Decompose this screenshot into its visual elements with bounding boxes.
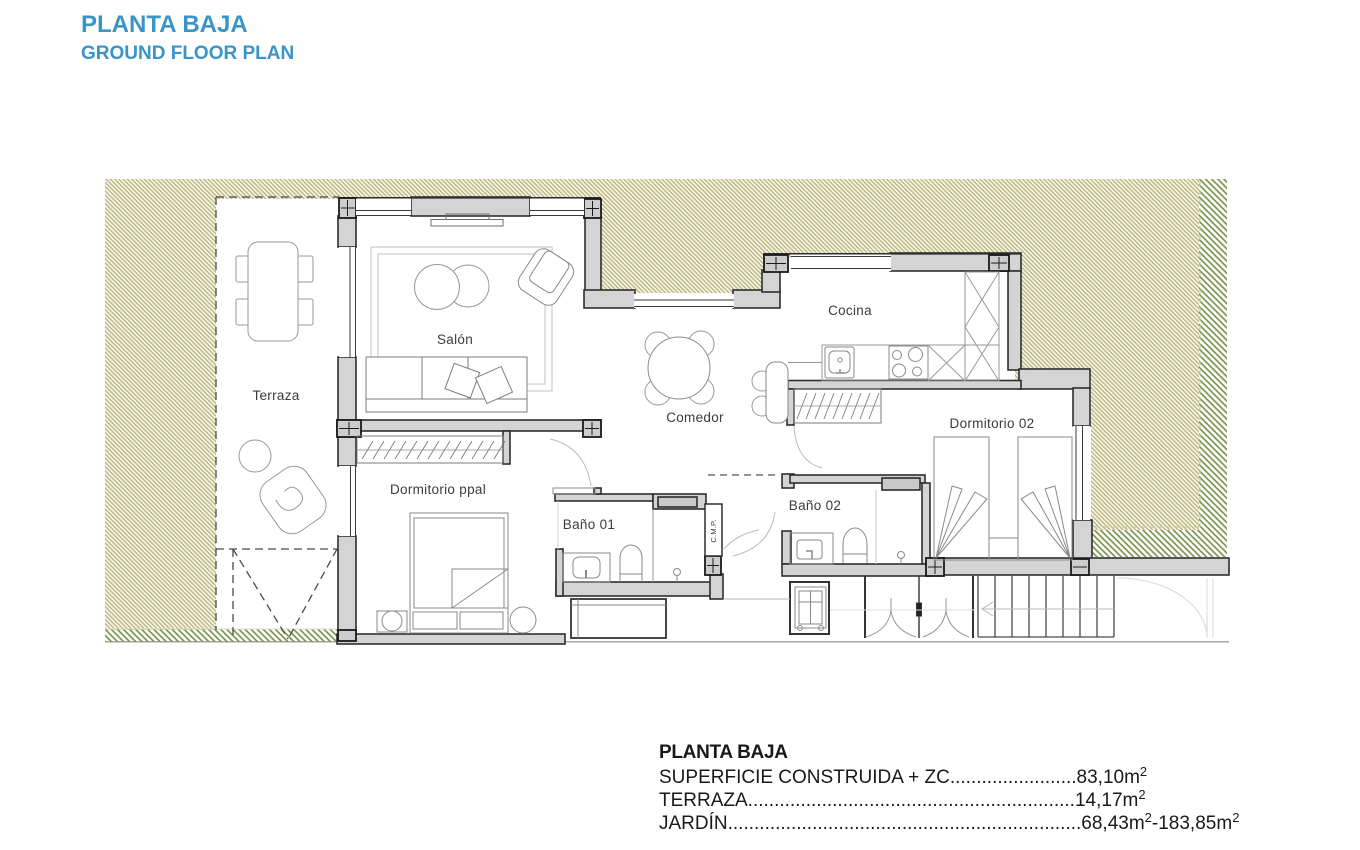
svg-text:Salón: Salón <box>437 332 473 347</box>
svg-text:C.M.P.: C.M.P. <box>709 519 718 542</box>
svg-text:Cocina: Cocina <box>828 303 872 318</box>
svg-text:GROUND FLOOR PLAN: GROUND FLOOR PLAN <box>81 43 294 64</box>
svg-text:Baño 02: Baño 02 <box>789 498 841 513</box>
svg-text:PLANTA BAJA: PLANTA BAJA <box>659 742 788 763</box>
svg-text:SUPERFICIE CONSTRUIDA + ZC....: SUPERFICIE CONSTRUIDA + ZC..............… <box>659 764 1147 788</box>
svg-text:Baño 01: Baño 01 <box>563 517 615 532</box>
svg-text:Dormitorio ppal: Dormitorio ppal <box>390 482 486 497</box>
svg-text:Dormitorio 02: Dormitorio 02 <box>950 416 1035 431</box>
svg-text:JARDÍN........................: JARDÍN..................................… <box>659 810 1239 834</box>
svg-text:Comedor: Comedor <box>666 410 724 425</box>
svg-text:PLANTA BAJA: PLANTA BAJA <box>81 11 248 38</box>
svg-text:Terraza: Terraza <box>252 388 299 403</box>
svg-text:TERRAZA.......................: TERRAZA.................................… <box>659 787 1146 811</box>
